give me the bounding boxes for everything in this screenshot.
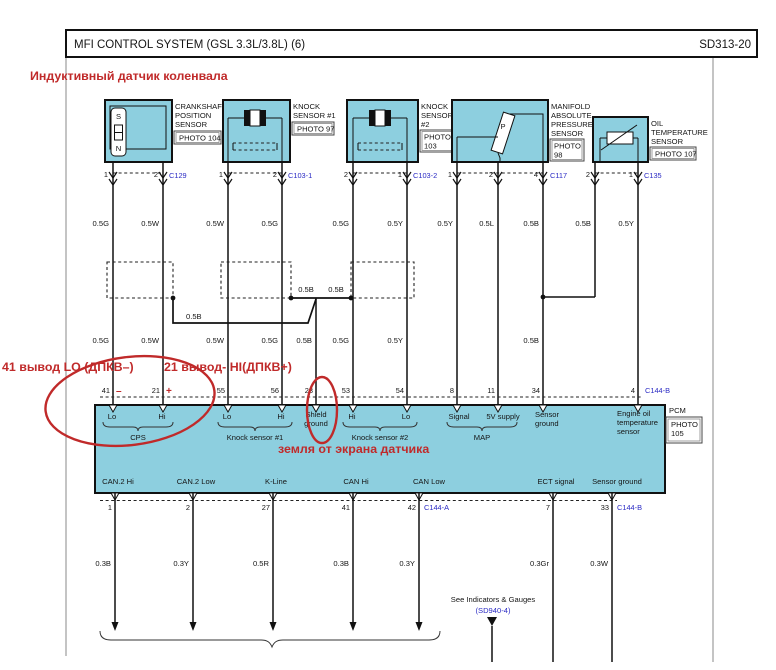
pcm-label: Lo — [223, 412, 231, 421]
sensor-connector-row: 1 2 C129 1 2 C103-1 2 1 C103-2 1 2 4 C11… — [104, 170, 662, 185]
pcm-pin: 54 — [396, 386, 404, 395]
pcm-label: 5V supply — [486, 412, 520, 421]
wire-label: 0.5Y — [437, 219, 453, 228]
wire-label: 0.5B — [523, 336, 539, 345]
pcm-label: sensor — [617, 427, 640, 436]
pin-number: 1 — [448, 170, 452, 179]
pcm-pin: 56 — [271, 386, 279, 395]
pcm-label: K-Line — [265, 477, 287, 486]
cps-symbol-n: N — [116, 144, 121, 153]
pcm-label: Hi — [348, 412, 355, 421]
annotation-pin21: 21 вывод- HI(ДПКВ+) — [164, 360, 292, 374]
annotation-minus: – — [116, 386, 122, 397]
pcm-group-label: CPS — [130, 433, 146, 442]
pcm-label: CAN Low — [413, 477, 446, 486]
wire-label: 0.5G — [93, 336, 110, 345]
sensor-label: #2 — [421, 120, 429, 129]
pcm-pin: 41 — [342, 503, 350, 512]
map-symbol-p: P — [500, 122, 505, 131]
wire-label: 0.3Y — [399, 559, 415, 568]
pcm-pin: 27 — [262, 503, 270, 512]
bottom-wires: 0.3B 0.3Y 0.5R 0.3B 0.3Y 0.3Gr 0.3W — [95, 493, 612, 662]
pcm-pin: 4 — [631, 386, 635, 395]
sensor-label: SENSOR — [551, 129, 584, 138]
pin-number: 2 — [273, 170, 277, 179]
wire-label: 0.5W — [141, 336, 160, 345]
sensor-label: OIL — [651, 119, 663, 128]
connector-label: C103-2 — [413, 171, 437, 180]
wire-label: 0.3B — [95, 559, 111, 568]
wire-label: 0.3Gr — [530, 559, 549, 568]
pin-number: 2 — [154, 170, 158, 179]
wire-label: 0.5G — [333, 336, 350, 345]
pcm-label: Signal — [448, 412, 469, 421]
pcm-group-label: Knock sensor #2 — [352, 433, 409, 442]
connector-label: C117 — [550, 171, 567, 180]
page-title: MFI CONTROL SYSTEM (GSL 3.3L/3.8L) (6) — [74, 39, 305, 51]
wire-label: 0.3W — [590, 559, 609, 568]
annotation-crankshaft-sensor: Индуктивный датчик коленвала — [30, 69, 228, 83]
connector-label: C144-A — [424, 503, 449, 512]
pcm-group-label: Knock sensor #1 — [227, 433, 284, 442]
annotation-plus: + — [166, 386, 172, 397]
wire-label: 0.5Y — [618, 219, 634, 228]
sensor-label: ABSOLUTE — [551, 111, 592, 120]
wire-label: 0.5B — [328, 285, 344, 294]
wire-label: 0.5Y — [387, 336, 403, 345]
wire-label: 0.5B — [575, 219, 591, 228]
connector-label: C144-B — [645, 386, 670, 395]
connector-label: C129 — [169, 171, 187, 180]
down-triangle-icon — [487, 617, 497, 626]
knock1-box — [223, 100, 290, 162]
pcm-pin: 8 — [450, 386, 454, 395]
sensor-label: CRANKSHAFT — [175, 102, 227, 111]
wire-label: 0.5R — [253, 559, 270, 568]
connector-label: C103-1 — [288, 171, 312, 180]
wire-label: 0.5G — [262, 219, 279, 228]
photo-ref: PHOTO 104 — [179, 134, 221, 143]
bottom-brace — [100, 631, 440, 647]
wire-label: 0.5Y — [387, 219, 403, 228]
pin-number: 1 — [629, 170, 633, 179]
pin-number: 4 — [534, 170, 538, 179]
annotation-pin41: 41 вывод LO (ДПКВ–) — [2, 360, 134, 374]
wire-label: 0.5B — [523, 219, 539, 228]
pin-number: 2 — [586, 170, 590, 179]
pcm-label: CAN.2 Hi — [102, 477, 134, 486]
wire-label: 0.5G — [333, 219, 350, 228]
pcm-label: Sensor ground — [592, 477, 642, 486]
pin-number: 2 — [489, 170, 493, 179]
pin-number: 2 — [344, 170, 348, 179]
sensor-crankshaft-position: S N CRANKSHAFT POSITION SENSOR PHOTO 104 — [105, 100, 227, 162]
photo-ref: PHOTO — [671, 420, 698, 429]
sensor-knock-2: KNOCK SENSOR #2 PHOTO 103 — [347, 100, 454, 162]
pin-number: 1 — [398, 170, 402, 179]
sensor-label: SENSOR — [651, 137, 684, 146]
pcm-pin: 2 — [186, 503, 190, 512]
pcm-group-label: MAP — [474, 433, 490, 442]
pcm-pin: 1 — [108, 503, 112, 512]
pcm-top-pin-numbers: 41 21 55 56 23 53 54 8 11 34 4 C144-B – … — [102, 386, 670, 397]
pcm-label: temperature — [617, 418, 658, 427]
pcm-label: ground — [535, 419, 559, 428]
pcm-label: CAN.2 Low — [177, 477, 216, 486]
pcm-label: Engine oil — [617, 409, 651, 418]
thermistor-symbol — [607, 132, 633, 144]
photo-ref: 98 — [554, 151, 562, 160]
sensor-label: KNOCK — [421, 102, 448, 111]
connector-label: C135 — [644, 171, 662, 180]
sensor-label: POSITION — [175, 111, 211, 120]
cps-symbol-s: S — [116, 112, 121, 121]
pcm-pin: 11 — [487, 386, 495, 395]
pcm-name: PCM — [669, 406, 686, 415]
photo-ref: PHOTO — [554, 142, 581, 151]
wire-label: 0.5B — [186, 312, 202, 321]
pcm-pin: 53 — [342, 386, 350, 395]
wire-label: 0.3Y — [173, 559, 189, 568]
wire-label: 0.3B — [333, 559, 349, 568]
pcm-label: Lo — [402, 412, 410, 421]
pcm-bottom-notches — [111, 493, 616, 500]
pcm-pin: 55 — [217, 386, 225, 395]
pcm-pin: 34 — [532, 386, 540, 395]
photo-ref: PHOTO 107 — [655, 150, 697, 159]
sensor-label: KNOCK — [293, 102, 320, 111]
wire-label: 0.5B — [298, 285, 314, 294]
photo-ref: PHOTO — [424, 133, 451, 142]
pcm-label: Hi — [158, 412, 165, 421]
wire-label: 0.5G — [262, 336, 279, 345]
title-bar: MFI CONTROL SYSTEM (GSL 3.3L/3.8L) (6) S… — [66, 30, 757, 57]
see-ref: (SD940-4) — [475, 606, 510, 615]
sensor-oil-temp: OIL TEMPERATURE SENSOR PHOTO 107 — [593, 117, 708, 162]
pcm-label: Sensor — [535, 410, 560, 419]
wire-label: 0.5W — [141, 219, 160, 228]
offpage-reference: See Indicators & Gauges (SD940-4) — [451, 595, 536, 662]
pcm-pin: 41 — [102, 386, 110, 395]
shield-screen-boxes — [107, 262, 414, 405]
sensor-label: SENSOR #1 — [293, 111, 336, 120]
pin-number: 1 — [104, 170, 108, 179]
see-note: See Indicators & Gauges — [451, 595, 536, 604]
sensor-label: TEMPERATURE — [651, 128, 708, 137]
sensor-knock-1: KNOCK SENSOR #1 PHOTO 97 — [223, 100, 336, 162]
sensor-label: MANIFOLD — [551, 102, 591, 111]
pcm-pin: 42 — [408, 503, 416, 512]
wire-label: 0.5B — [296, 336, 312, 345]
annotation-shield-ground: земля от экрана датчика — [278, 442, 429, 456]
photo-ref: 103 — [424, 142, 437, 151]
pcm-pin: 33 — [601, 503, 609, 512]
wire-label: 0.5G — [93, 219, 110, 228]
pcm-label: Lo — [108, 412, 116, 421]
sensor-label: SENSOR — [421, 111, 454, 120]
pin-number: 1 — [219, 170, 223, 179]
pcm-bottom-pin-numbers: 1 2 27 41 42 C144-A 7 33 C144-B — [108, 503, 642, 512]
wire-label: 0.5L — [479, 219, 494, 228]
page-code: SD313-20 — [699, 39, 751, 51]
schematic-page: MFI CONTROL SYSTEM (GSL 3.3L/3.8L) (6) S… — [0, 0, 776, 670]
photo-ref: 105 — [671, 429, 684, 438]
wire-label: 0.5W — [206, 336, 225, 345]
sensor-label: PRESSURE — [551, 120, 593, 129]
pcm-pin: 7 — [546, 503, 550, 512]
connector-label: C144-B — [617, 503, 642, 512]
pcm-label: ECT signal — [537, 477, 574, 486]
sensor-map: P MANIFOLD ABSOLUTE PRESSURE SENSOR PHOT… — [452, 100, 593, 162]
sensor-label: SENSOR — [175, 120, 208, 129]
wire-label: 0.5W — [206, 219, 225, 228]
pcm-pin: 21 — [152, 386, 160, 395]
pcm-label: Shield — [305, 410, 326, 419]
photo-ref: PHOTO 97 — [297, 125, 334, 134]
pcm-label: Hi — [277, 412, 284, 421]
wiring-diagram-svg: MFI CONTROL SYSTEM (GSL 3.3L/3.8L) (6) S… — [0, 0, 776, 670]
pcm-label: CAN Hi — [343, 477, 369, 486]
